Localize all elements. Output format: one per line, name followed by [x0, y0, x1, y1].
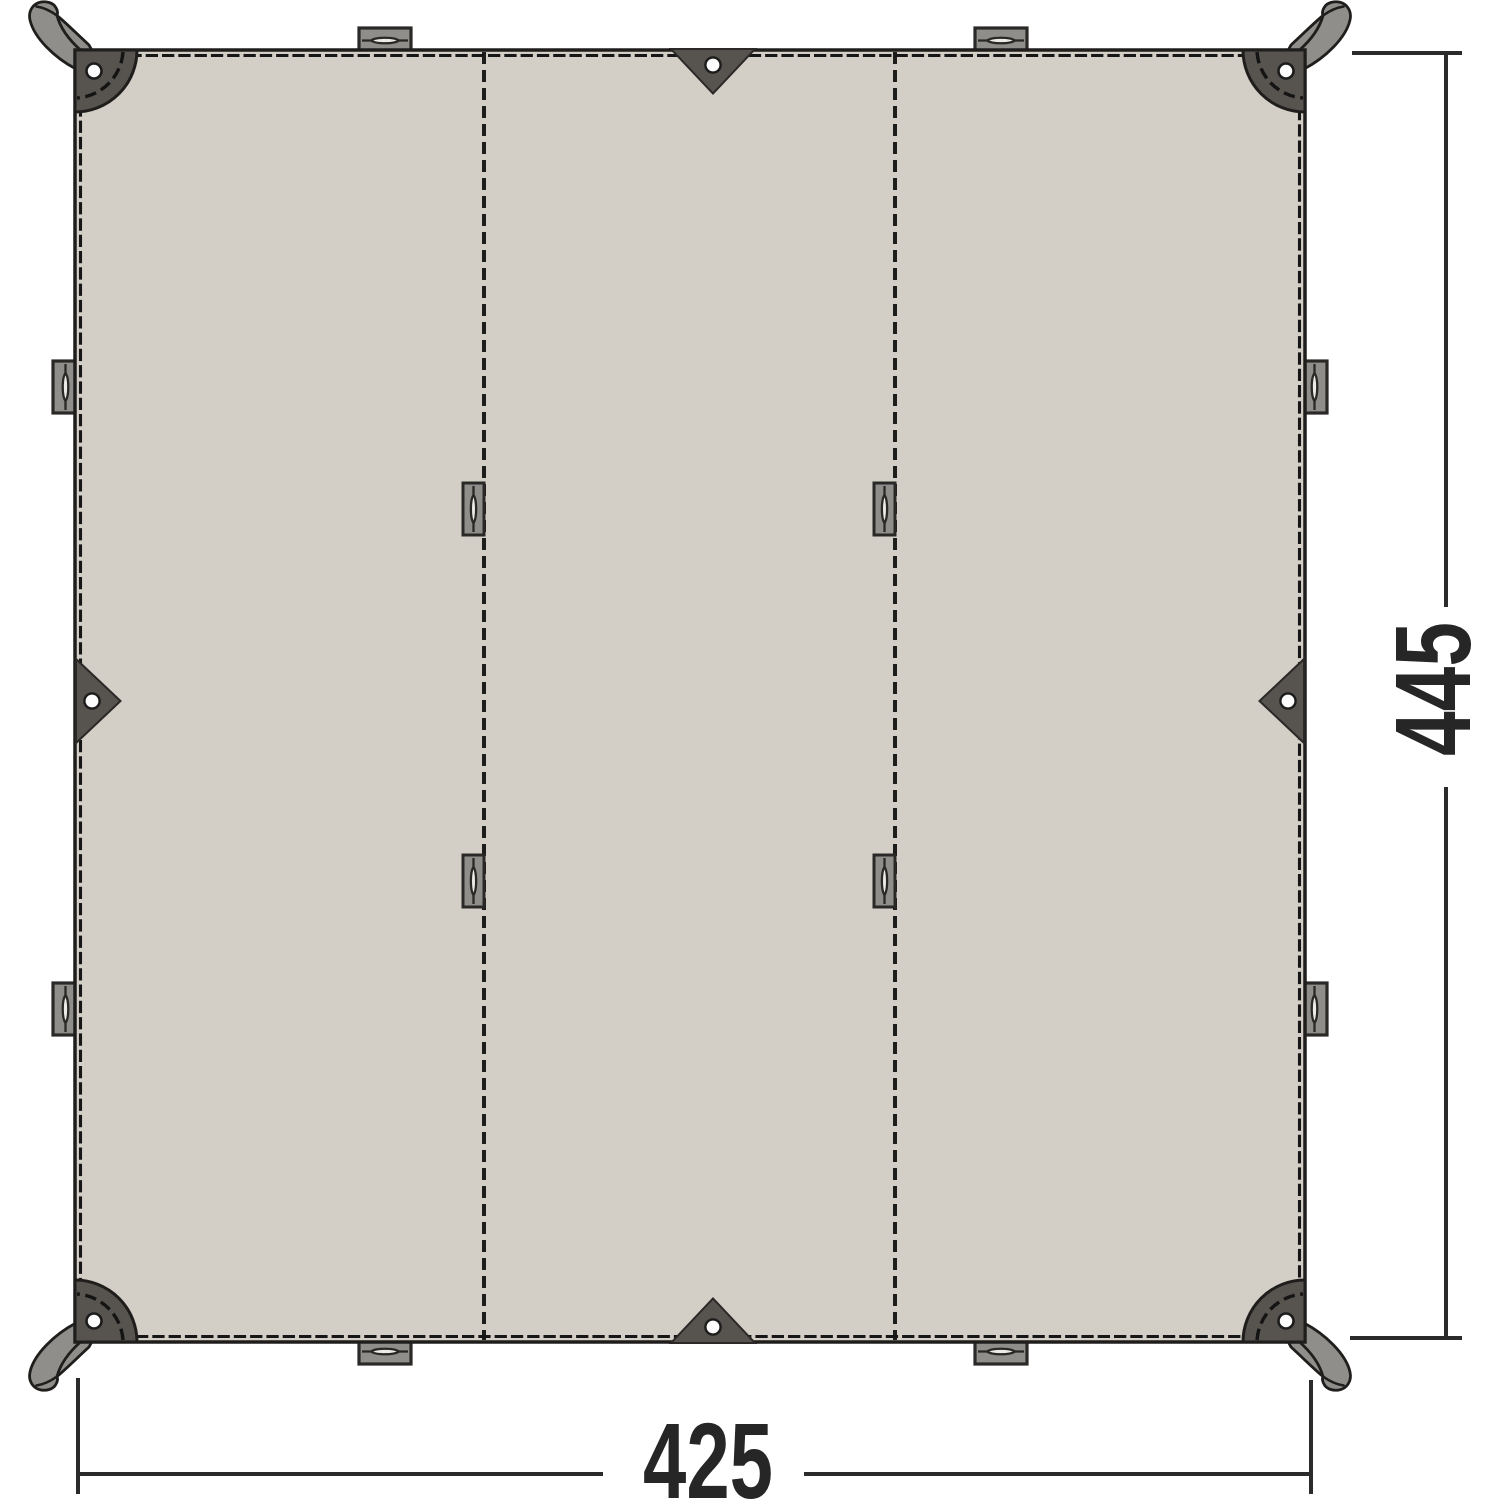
svg-text:425: 425: [643, 1400, 773, 1500]
svg-text:445: 445: [1372, 622, 1493, 756]
